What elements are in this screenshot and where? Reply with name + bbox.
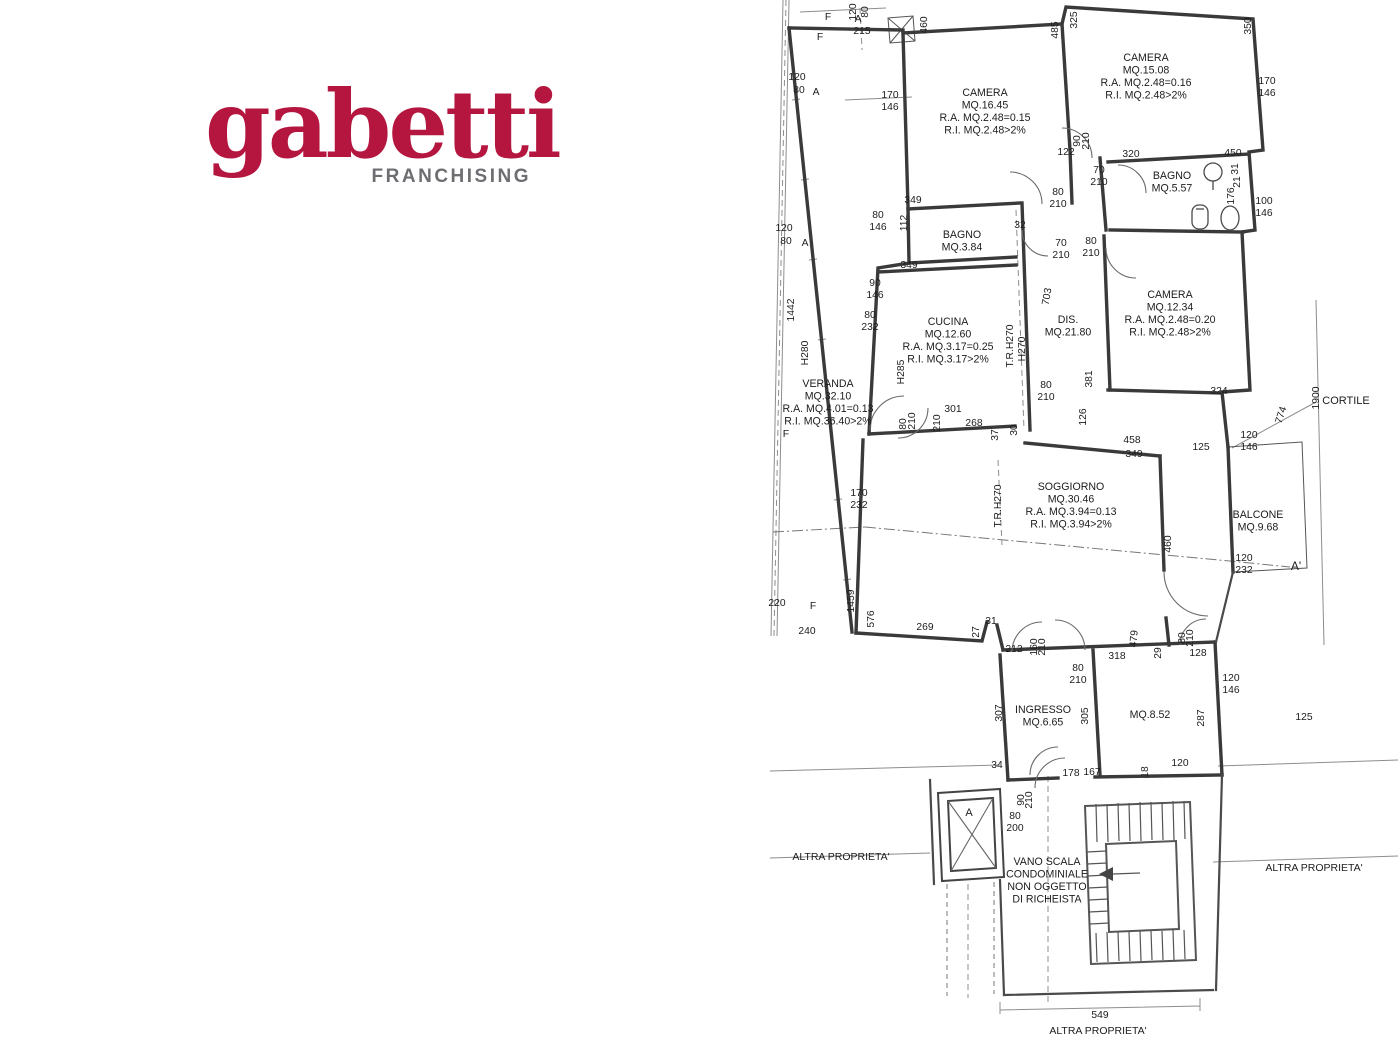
annotation-label: F bbox=[783, 428, 789, 440]
room-label-dis: DIS. bbox=[1058, 314, 1079, 326]
annotation-label: ALTRA PROPRIETA' bbox=[792, 851, 889, 863]
room-label-bagno-3: BAGNO bbox=[943, 229, 981, 241]
dimension-label: 146 bbox=[881, 102, 898, 113]
dimension-label: 120 bbox=[775, 223, 792, 234]
dimension-label: 170 bbox=[850, 488, 867, 499]
dimension-label: 146 bbox=[1240, 442, 1257, 453]
dimension-label: 80 bbox=[1009, 811, 1021, 822]
room-label-camera-12: R.A. MQ.2.48=0.20 bbox=[1125, 314, 1216, 326]
dimension-label: H270 bbox=[1017, 336, 1028, 361]
annotation-label: CORTILE bbox=[1322, 395, 1369, 407]
dimension-label: 210 bbox=[1024, 791, 1035, 808]
dimension-label: 128 bbox=[1189, 648, 1206, 659]
dimension-label: 125 bbox=[1192, 442, 1209, 453]
elevator-shaft bbox=[938, 789, 1004, 996]
room-label-vano-scala: DI RICHEISTA bbox=[1012, 894, 1082, 906]
dimension-label: 122 bbox=[1057, 147, 1074, 158]
dimension-label: 458 bbox=[1123, 435, 1140, 446]
dimension-label: A bbox=[965, 807, 973, 819]
dimension-label: 167 bbox=[1083, 767, 1100, 778]
dimension-label: 37 bbox=[990, 429, 1001, 441]
dimension-label: 350 bbox=[1243, 17, 1254, 34]
room-label-vano-scala: CONDOMINIALE bbox=[1006, 869, 1088, 881]
room-label-veranda: R.I. MQ.36.40>2% bbox=[784, 416, 872, 428]
room-label-camera-16: R.A. MQ.2.48=0.15 bbox=[940, 112, 1031, 124]
room-label-camera-16: R.I. MQ.2.48>2% bbox=[944, 125, 1026, 137]
dimension-label: 210 bbox=[1090, 177, 1107, 188]
dimension-label: F bbox=[825, 12, 831, 23]
dimension-label: 305 bbox=[1080, 707, 1091, 724]
dimension-label: 210 bbox=[1049, 199, 1066, 210]
dimension-label: H285 bbox=[896, 359, 907, 384]
room-label-camera-12: R.I. MQ.2.48>2% bbox=[1129, 327, 1211, 339]
door-arcs bbox=[870, 128, 1208, 788]
annotation-label: ALTRA PROPRIETA' bbox=[1265, 862, 1362, 874]
dimension-label: 120 bbox=[1235, 553, 1252, 564]
dimension-label: 120 bbox=[1171, 758, 1188, 769]
dimension-label: H280 bbox=[800, 340, 811, 365]
dimension-label: 450 bbox=[1224, 148, 1241, 159]
floor-plan: CAMERAMQ.16.45R.A. MQ.2.48=0.15R.I. MQ.2… bbox=[0, 0, 1400, 1050]
dimension-label: F bbox=[817, 32, 823, 43]
dimension-label: 100 bbox=[1255, 196, 1272, 207]
dimension-label: 210 bbox=[1185, 629, 1196, 646]
dimension-label: 210 bbox=[1037, 392, 1054, 403]
dimension-label: 210 bbox=[1082, 248, 1099, 259]
dimension-label: 80 bbox=[793, 85, 805, 96]
dimension-label: 80 bbox=[1085, 236, 1097, 247]
room-label-ingresso: MQ.6.65 bbox=[1023, 717, 1064, 729]
dimension-label: 120 bbox=[1240, 430, 1257, 441]
dimension-label: 80 bbox=[780, 236, 792, 247]
dimension-label: 210 bbox=[932, 414, 943, 431]
dimension-label: 703 bbox=[1041, 287, 1055, 306]
dimension-label: A bbox=[855, 14, 862, 25]
room-label-camera-15: R.A. MQ.2.48=0.16 bbox=[1101, 77, 1192, 89]
dimension-label: 112 bbox=[899, 215, 910, 232]
dimension-label: 460 bbox=[1163, 535, 1174, 552]
dimension-label: 349 bbox=[904, 195, 921, 206]
dimension-label: 240 bbox=[798, 626, 815, 637]
dimension-label: T.R.H270 bbox=[1005, 324, 1016, 367]
dimension-label: 80 bbox=[872, 210, 884, 221]
dimension-label: 287 bbox=[1196, 709, 1207, 726]
room-label-veranda: VERANDA bbox=[802, 378, 854, 390]
dimension-label: 120 bbox=[1222, 673, 1239, 684]
dimension-label: 460 bbox=[919, 16, 930, 33]
dimension-label: 269 bbox=[916, 622, 933, 633]
dimension-label: 318 bbox=[1108, 651, 1125, 662]
room-label-room-852: MQ.8.52 bbox=[1130, 709, 1171, 721]
room-label-soggiorno: MQ.30.46 bbox=[1048, 494, 1095, 506]
dimension-label: 120 bbox=[788, 72, 805, 83]
room-label-ingresso: INGRESSO bbox=[1015, 704, 1071, 716]
dimension-label: 1900 bbox=[1311, 386, 1322, 409]
dimension-label: 576 bbox=[866, 610, 877, 627]
room-label-balcone: MQ.9.68 bbox=[1238, 522, 1279, 534]
dimension-label: 27 bbox=[971, 626, 982, 638]
dimension-label: 232 bbox=[850, 500, 867, 511]
room-label-cucina: CUCINA bbox=[928, 316, 970, 328]
room-label-balcone: BALCONE bbox=[1233, 509, 1284, 521]
dimension-label: 774 bbox=[1274, 405, 1290, 425]
dimension-label: 146 bbox=[1222, 685, 1239, 696]
dimension-label: 324 bbox=[1210, 386, 1227, 397]
dimension-label: 268 bbox=[965, 418, 982, 429]
dimension-label: 232 bbox=[1235, 565, 1252, 576]
dimension-label: 30 bbox=[1009, 424, 1020, 436]
dimension-label: 220 bbox=[768, 598, 785, 609]
dimension-label: 32 bbox=[1014, 220, 1026, 231]
dimension-label: 29 bbox=[1153, 647, 1164, 659]
dimension-label: 18 bbox=[1140, 766, 1151, 778]
dimension-label: 80 bbox=[1040, 380, 1052, 391]
room-label-camera-15: CAMERA bbox=[1123, 52, 1169, 64]
dimension-label: 212 bbox=[1005, 644, 1022, 655]
dimension-label: 126 bbox=[1078, 408, 1089, 425]
dimension-label: 70 bbox=[1093, 165, 1105, 176]
dimension-label: A bbox=[813, 87, 820, 98]
dimension-label: F bbox=[810, 601, 816, 612]
dimension-label: 21 bbox=[1232, 176, 1243, 188]
dimension-label: 80 bbox=[1072, 663, 1084, 674]
dimension-label: 200 bbox=[1006, 823, 1023, 834]
dimension-label: 479 bbox=[1128, 629, 1140, 647]
dimension-label: 320 bbox=[1122, 149, 1139, 160]
room-label-bagno-5: MQ.5.57 bbox=[1152, 183, 1193, 195]
room-label-cucina: R.A. MQ.3.17=0.25 bbox=[903, 341, 994, 353]
dimension-label: 146 bbox=[866, 290, 883, 301]
dimension-label: 301 bbox=[944, 404, 961, 415]
dimension-label: 349 bbox=[900, 260, 917, 271]
dimension-label: 31 bbox=[985, 616, 997, 627]
room-label-camera-15: MQ.15.08 bbox=[1123, 65, 1170, 77]
dimension-label: 210 bbox=[1052, 250, 1069, 261]
dimension-label: 232 bbox=[861, 322, 878, 333]
dimension-label: T.R.H270 bbox=[993, 484, 1004, 527]
room-label-camera-15: R.I. MQ.2.48>2% bbox=[1105, 90, 1187, 102]
dimension-label: 210 bbox=[1081, 132, 1092, 149]
dimension-label: 349 bbox=[1125, 449, 1142, 460]
dimension-label: 210 bbox=[907, 412, 918, 429]
dimension-label: 80 bbox=[1052, 187, 1064, 198]
dimension-label: 146 bbox=[869, 222, 886, 233]
dimension-label: 381 bbox=[1084, 370, 1095, 387]
room-label-vano-scala: NON OGGETTO bbox=[1007, 881, 1086, 893]
dimension-label: 178 bbox=[1062, 768, 1079, 779]
dimension-label: A bbox=[802, 238, 809, 249]
dimension-label: 215 bbox=[853, 26, 870, 37]
dimension-label: 70 bbox=[1055, 238, 1067, 249]
room-label-camera-12: CAMERA bbox=[1147, 289, 1193, 301]
dimension-label: 90 bbox=[869, 278, 881, 289]
dimension-label: 1459 bbox=[846, 589, 857, 612]
dimension-label: 146 bbox=[1258, 88, 1275, 99]
dimension-label: 170 bbox=[1258, 76, 1275, 87]
dimension-label: 1442 bbox=[786, 298, 797, 321]
dimension-label: 210 bbox=[1037, 638, 1048, 655]
room-label-soggiorno: SOGGIORNO bbox=[1038, 481, 1105, 493]
dimension-label: 549 bbox=[1091, 1010, 1108, 1021]
room-label-bagno-5: BAGNO bbox=[1153, 170, 1191, 182]
staircase bbox=[1085, 801, 1196, 964]
dimension-label: A' bbox=[1291, 559, 1301, 573]
dimension-label: 80 bbox=[864, 310, 876, 321]
dimension-label: 170 bbox=[881, 90, 898, 101]
room-label-camera-12: MQ.12.34 bbox=[1147, 302, 1194, 314]
room-label-soggiorno: R.I. MQ.3.94>2% bbox=[1030, 519, 1112, 531]
room-label-cucina: R.I. MQ.3.17>2% bbox=[907, 354, 989, 366]
room-label-cucina: MQ.12.60 bbox=[925, 329, 972, 341]
dimension-label: 125 bbox=[1295, 712, 1312, 723]
dimension-label: 210 bbox=[1069, 675, 1086, 686]
room-label-dis: MQ.21.80 bbox=[1045, 327, 1092, 339]
annotation-label: ALTRA PROPRIETA' bbox=[1049, 1025, 1146, 1037]
dimension-label: 325 bbox=[1069, 11, 1080, 28]
room-label-veranda: MQ.32.10 bbox=[805, 391, 852, 403]
dimension-label: 31 bbox=[1230, 163, 1241, 175]
dimension-label: 485 bbox=[1050, 21, 1061, 38]
dimension-label: 146 bbox=[1255, 208, 1272, 219]
room-label-camera-16: MQ.16.45 bbox=[962, 100, 1009, 112]
dimension-label: 80 bbox=[860, 6, 871, 18]
room-label-camera-16: CAMERA bbox=[962, 87, 1008, 99]
dimension-label: 176 bbox=[1226, 187, 1237, 204]
room-label-veranda: R.A. MQ.4.01=0.13 bbox=[783, 403, 874, 415]
real-estate-floorplan-page: gabetti FRANCHISING bbox=[0, 0, 1400, 1050]
dimension-label: 307 bbox=[994, 704, 1005, 721]
room-label-vano-scala: VANO SCALA bbox=[1014, 856, 1082, 868]
room-label-bagno-3: MQ.3.84 bbox=[942, 242, 983, 254]
room-label-soggiorno: R.A. MQ.3.94=0.13 bbox=[1026, 506, 1117, 518]
dimension-label: 34 bbox=[991, 760, 1003, 771]
